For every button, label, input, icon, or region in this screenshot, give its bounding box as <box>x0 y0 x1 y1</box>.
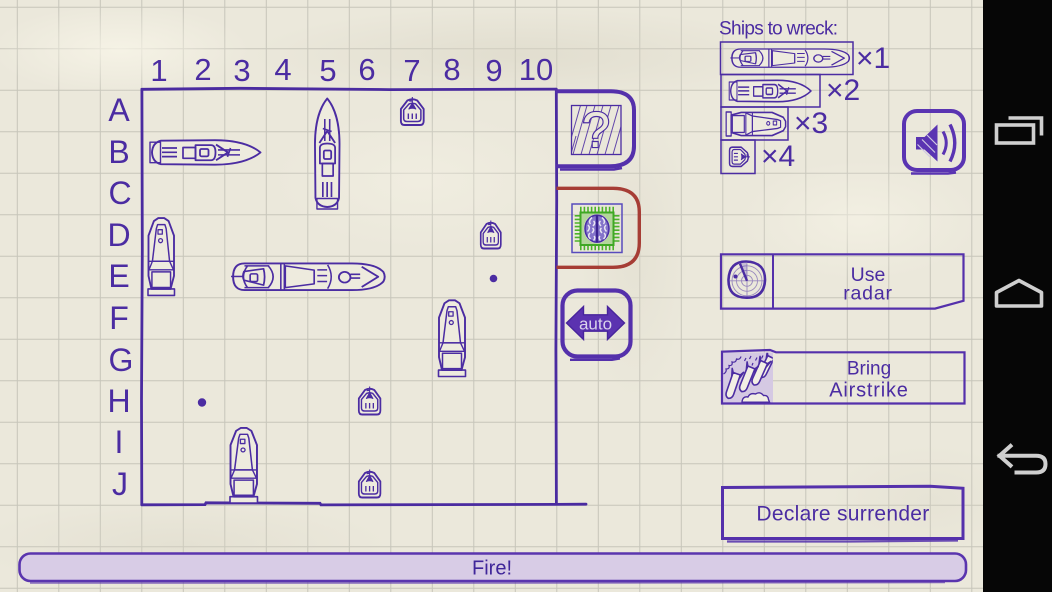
svg-text:C: C <box>108 175 131 211</box>
svg-text:×2: ×2 <box>826 74 860 107</box>
svg-text:?: ? <box>582 102 610 158</box>
svg-text:2: 2 <box>194 52 211 87</box>
svg-text:J: J <box>112 466 128 502</box>
svg-text:10: 10 <box>519 52 553 87</box>
svg-text:radar: radar <box>843 283 893 305</box>
svg-text:4: 4 <box>274 52 291 87</box>
svg-text:8: 8 <box>443 52 460 87</box>
svg-text:A: A <box>108 92 130 128</box>
svg-text:I: I <box>115 424 124 460</box>
svg-text:E: E <box>108 258 129 294</box>
svg-text:3: 3 <box>233 53 250 88</box>
svg-text:5: 5 <box>319 53 336 88</box>
svg-text:H: H <box>107 383 130 419</box>
svg-text:×4: ×4 <box>761 140 795 173</box>
svg-text:×1: ×1 <box>856 42 890 75</box>
svg-text:Fire!: Fire! <box>472 558 512 580</box>
svg-text:7: 7 <box>403 53 420 88</box>
svg-text:Airstrike: Airstrike <box>829 380 908 402</box>
svg-text:auto: auto <box>579 315 612 334</box>
svg-text:1: 1 <box>150 53 167 88</box>
svg-text:B: B <box>108 134 129 170</box>
svg-text:G: G <box>109 342 134 378</box>
svg-text:×3: ×3 <box>794 107 828 140</box>
svg-text:Bring: Bring <box>847 359 891 380</box>
svg-text:D: D <box>107 217 130 253</box>
svg-text:Declare surrender: Declare surrender <box>756 503 929 526</box>
svg-text:9: 9 <box>485 53 502 88</box>
svg-text:F: F <box>109 300 129 336</box>
svg-text:6: 6 <box>358 52 375 87</box>
svg-text:Ships to wreck:: Ships to wreck: <box>719 19 837 40</box>
